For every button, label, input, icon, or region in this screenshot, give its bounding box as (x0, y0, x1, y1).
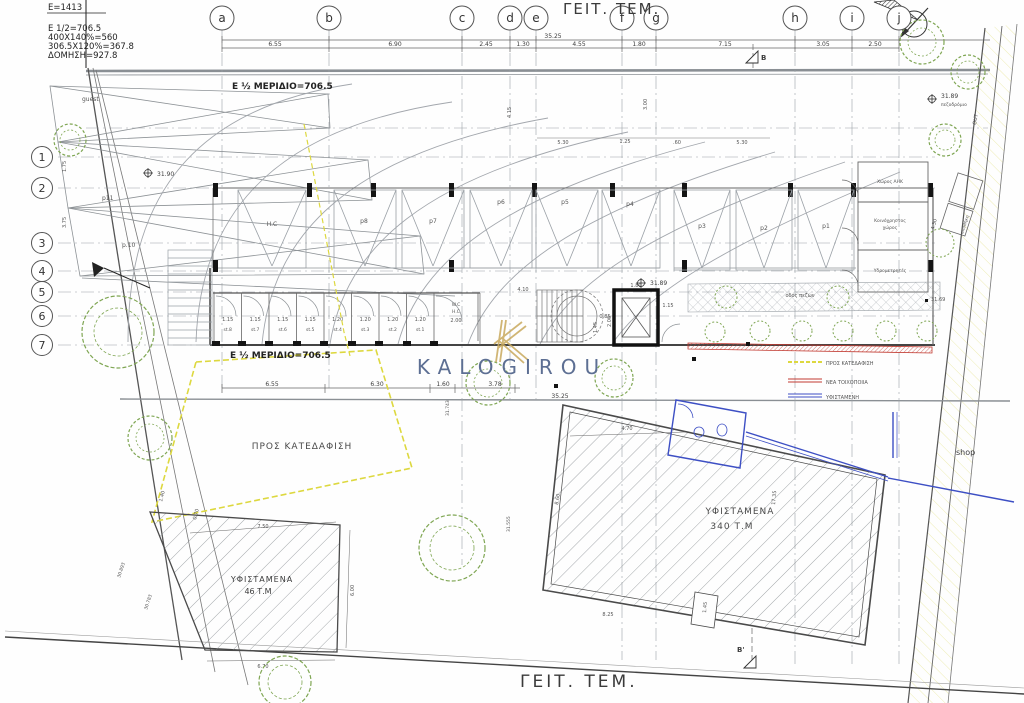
dim-top-1: 6.90 (388, 41, 402, 48)
dim-46: 6.70 (257, 664, 268, 670)
storage-width: 1.20 (415, 317, 426, 323)
stall-label-p1: p1 (822, 223, 830, 230)
tree-icon (929, 124, 961, 156)
storage-name: st.6 (278, 327, 287, 333)
parking-stall-p3 (674, 190, 730, 270)
storage-name: st.4 (333, 327, 342, 333)
elevator (614, 290, 658, 345)
dim-mid-total: 35.25 (551, 393, 568, 400)
site-plan-page: 35.25 6.55 6.90 2.45 1.30 4.55 1.80 7.15… (0, 0, 1024, 703)
dim-top-8: 2.50 (868, 41, 882, 48)
storage-name: st.7 (251, 327, 260, 333)
stall-label-hc: H.C (267, 221, 278, 228)
dim-top-6: 7.15 (718, 41, 732, 48)
dim-inner: 5.30 (557, 140, 568, 146)
existing-building-340: ΥΦΙΣΤΑΜΕΝΑ 340 Τ.Μ 4.70 8.60 17.35 8.25 … (543, 405, 885, 645)
dim-340: 4.70 (621, 426, 632, 432)
dim-top-0: 6.55 (268, 41, 282, 48)
level-30-783: 30.783 (143, 594, 154, 611)
grid-col-c: c (459, 11, 466, 25)
existing-340-label-1: ΥΦΙΣΤΑΜΕΝΑ (705, 507, 775, 517)
storage-width: 1.15 (305, 317, 316, 323)
storage-width: 1.20 (387, 317, 398, 323)
storage-width: 1.15 (250, 317, 261, 323)
dim-top-4: 4.55 (572, 41, 586, 48)
section-b-prime-label: B' (737, 646, 744, 654)
storage-name: st.8 (223, 327, 232, 333)
parking-stall-p8 (334, 190, 396, 268)
grid-col-e: e (532, 11, 539, 25)
dim-inner: .60 (673, 140, 681, 146)
grid-col-a: a (218, 11, 225, 25)
dim-top-7: 3.05 (816, 41, 830, 48)
level-31-555: 31.555 (506, 516, 512, 532)
grid-row-5: 5 (39, 286, 46, 299)
legend-existing: ΥΦΙΣΤΑΜΕΝΗ (825, 395, 859, 401)
existing-340-label-2: 340 Τ.Μ (710, 522, 753, 532)
dim-mid: 6.55 (265, 381, 279, 388)
storage-name: st.2 (388, 327, 397, 333)
dim-46: 7.50 (257, 524, 268, 530)
tree-icon (128, 416, 172, 460)
walkway-label: οδός πεζών (785, 292, 814, 299)
existing-46-label-2: 46 Τ.Μ (244, 587, 271, 596)
legend-new: ΝΕΑ ΤΟΙΧΟΠΟΙΙΑ (826, 380, 868, 386)
grid-col-h: h (791, 11, 799, 25)
ramp (168, 250, 212, 345)
room-label-common-1: Κοινόχρηστος (874, 217, 906, 224)
existing-building-46: ΥΦΙΣΤΑΜΕΝΑ 46 Τ.Μ 7.50 6.00 6.70 1.40 0.… (150, 490, 356, 670)
hc-label: H.C (452, 309, 460, 315)
dim-left: 1.75 (62, 161, 68, 172)
grid-row-1: 1 (39, 151, 46, 164)
grid-row-4: 4 (39, 265, 46, 278)
grid-bubbles-left: 1 2 3 4 5 6 7 (32, 147, 53, 356)
lobby-door-arc (662, 324, 680, 342)
section-marker-b-prime: B' (737, 628, 756, 668)
dim-inner: 1.45 (593, 322, 599, 333)
tree-icon (917, 321, 937, 341)
dim-46: 6.00 (350, 585, 356, 596)
calc-block: E=1413 E 1/2=706.5 400X140%=560 306.5X12… (47, 3, 134, 61)
existing-46-label-1: ΥΦΙΣΤΑΜΕΝΑ (230, 575, 293, 584)
level-31-90: 31.90 (157, 171, 174, 178)
grid-row-3: 3 (39, 237, 46, 250)
grid-col-d: d (506, 11, 514, 25)
stall-label-p8: p8 (360, 218, 368, 225)
dim-inner: 4.10 (517, 287, 528, 293)
room-label-ahk: Χώρος ΑΗΚ (877, 178, 904, 185)
storage-thresholds (212, 341, 438, 346)
storage-labels: 1.15 1.15 1.15 1.15 1.20 1.20 1.20 1.20 … (222, 302, 461, 333)
neighbor-bottom-label: ΓΕΙΤ. ΤΕΜ. (520, 672, 638, 692)
dim-top-5: 1.80 (632, 41, 646, 48)
storage-name: st.1 (416, 327, 425, 333)
left-parking-block (50, 86, 455, 296)
watermark-text: KALOGIROU (417, 355, 607, 379)
tree-icon (833, 321, 853, 341)
room-label-common-2: χώρος (883, 224, 898, 231)
dim-340: 1.45 (702, 602, 709, 614)
wc-label: W.C (452, 302, 461, 308)
storage-name: st.3 (361, 327, 370, 333)
room-label-meters: Υδρομετρητές (873, 267, 907, 274)
share-text-bottom: E ½ ΜΕΡΙΔΙΟ=706.5 (230, 350, 331, 361)
neighbor-top-label: ΓΕΙΤ. ΤΕΜ. (563, 0, 660, 18)
tree-icon (876, 321, 896, 341)
sidewalk-label: πεζοδρόμιο (941, 101, 967, 108)
stall-label-p2: p2 (760, 225, 768, 232)
storage-width: 1.20 (360, 317, 371, 323)
stall-label-p10: p.10 (122, 242, 136, 249)
level-30-893: 30.893 (116, 562, 127, 579)
level-marker-icon (143, 168, 153, 178)
dim-top-3: 1.30 (516, 41, 530, 48)
shop-label: shop (956, 448, 975, 457)
site-plan-drawing: 35.25 6.55 6.90 2.45 1.30 4.55 1.80 7.15… (0, 0, 1024, 703)
stall-label-p5: p5 (561, 199, 569, 206)
storage-name: st.5 (306, 327, 315, 333)
stall-label-p7: p7 (429, 218, 437, 225)
dim-inner: 4.30 (930, 218, 939, 230)
tree-icon (705, 322, 725, 342)
storage-width: 1.15 (222, 317, 233, 323)
top-dimension-labels: 35.25 6.55 6.90 2.45 1.30 4.55 1.80 7.15… (268, 33, 882, 48)
parking-stall-p1 (798, 190, 854, 270)
grid-col-b: b (325, 11, 333, 25)
stall-label-p11: p11 (102, 195, 114, 202)
dim-inner: 4.15 (507, 107, 513, 118)
grid-row-6: 6 (39, 310, 46, 323)
parking-stall-p7 (402, 190, 464, 268)
stall-label-p6: p6 (497, 199, 505, 206)
stall-label-guest: guest (82, 96, 99, 103)
dim-total-top: 35.25 (544, 33, 561, 40)
wc-width: 2.00 (450, 318, 461, 324)
dim-inner: 5.30 (736, 140, 747, 146)
dim-inner: 1.25 (619, 139, 630, 145)
stair-core (480, 290, 603, 345)
dim-mid: 6.30 (370, 381, 384, 388)
legend-demolish: ΠΡΟΣ ΚΑΤΕΔΑΦΙΣΗ (826, 361, 874, 367)
stall-label-p3: p3 (698, 223, 706, 230)
section-b-label: B (761, 54, 766, 62)
share-text-top: E ½ ΜΕΡΙΔΙΟ=706.5 (232, 81, 333, 92)
legend: ΠΡΟΣ ΚΑΤΕΔΑΦΙΣΗ ΝΕΑ ΤΟΙΧΟΠΟΙΙΑ ΥΦΙΣΤΑΜΕΝ… (788, 361, 874, 401)
tree-icon (750, 321, 770, 341)
grid-col-i: i (850, 11, 853, 25)
level-marker-icon (927, 94, 937, 104)
dim-left: 3.75 (62, 217, 68, 228)
level-31-89-core: 31.89 (650, 280, 667, 287)
demolish-label: ΠΡΟΣ ΚΑΤΕΔΑΦΙΣΗ (252, 442, 353, 452)
watermark: KALOGIROU (417, 320, 607, 379)
level-31-743: 31.743 (445, 400, 451, 416)
grid-row-2: 2 (39, 182, 46, 195)
dim-mid: 3.78 (488, 381, 502, 388)
storage-width: 1.15 (277, 317, 288, 323)
grid-bubbles-top: a b c d e f g h i j (210, 6, 911, 30)
dim-mid: 1.60 (436, 381, 450, 388)
dim-top-2: 2.45 (479, 41, 493, 48)
calc-line-e: E=1413 (48, 3, 82, 13)
level-31-89-road: 31.89 (941, 93, 958, 100)
tree-icon (82, 296, 154, 368)
grid-col-j: j (896, 11, 900, 25)
grid-row-7: 7 (39, 339, 46, 352)
dim-inner: 1.15 (662, 303, 673, 309)
stall-label-p4: p4 (626, 201, 634, 208)
dim-340: 17.35 (771, 490, 778, 505)
dim-inner: 3.00 (643, 99, 649, 110)
level-31-69: 31.69 (931, 297, 945, 303)
dim-340: 8.25 (602, 612, 613, 618)
tree-icon (419, 515, 485, 581)
calc-line-domisi: ΔΟΜΗΣΗ=927.8 (48, 51, 117, 61)
dim-inner: 2.00 (607, 316, 613, 327)
ramp-arrow-icon (92, 262, 150, 288)
tree-icon (926, 229, 954, 257)
dim-46: 1.40 (158, 490, 167, 502)
